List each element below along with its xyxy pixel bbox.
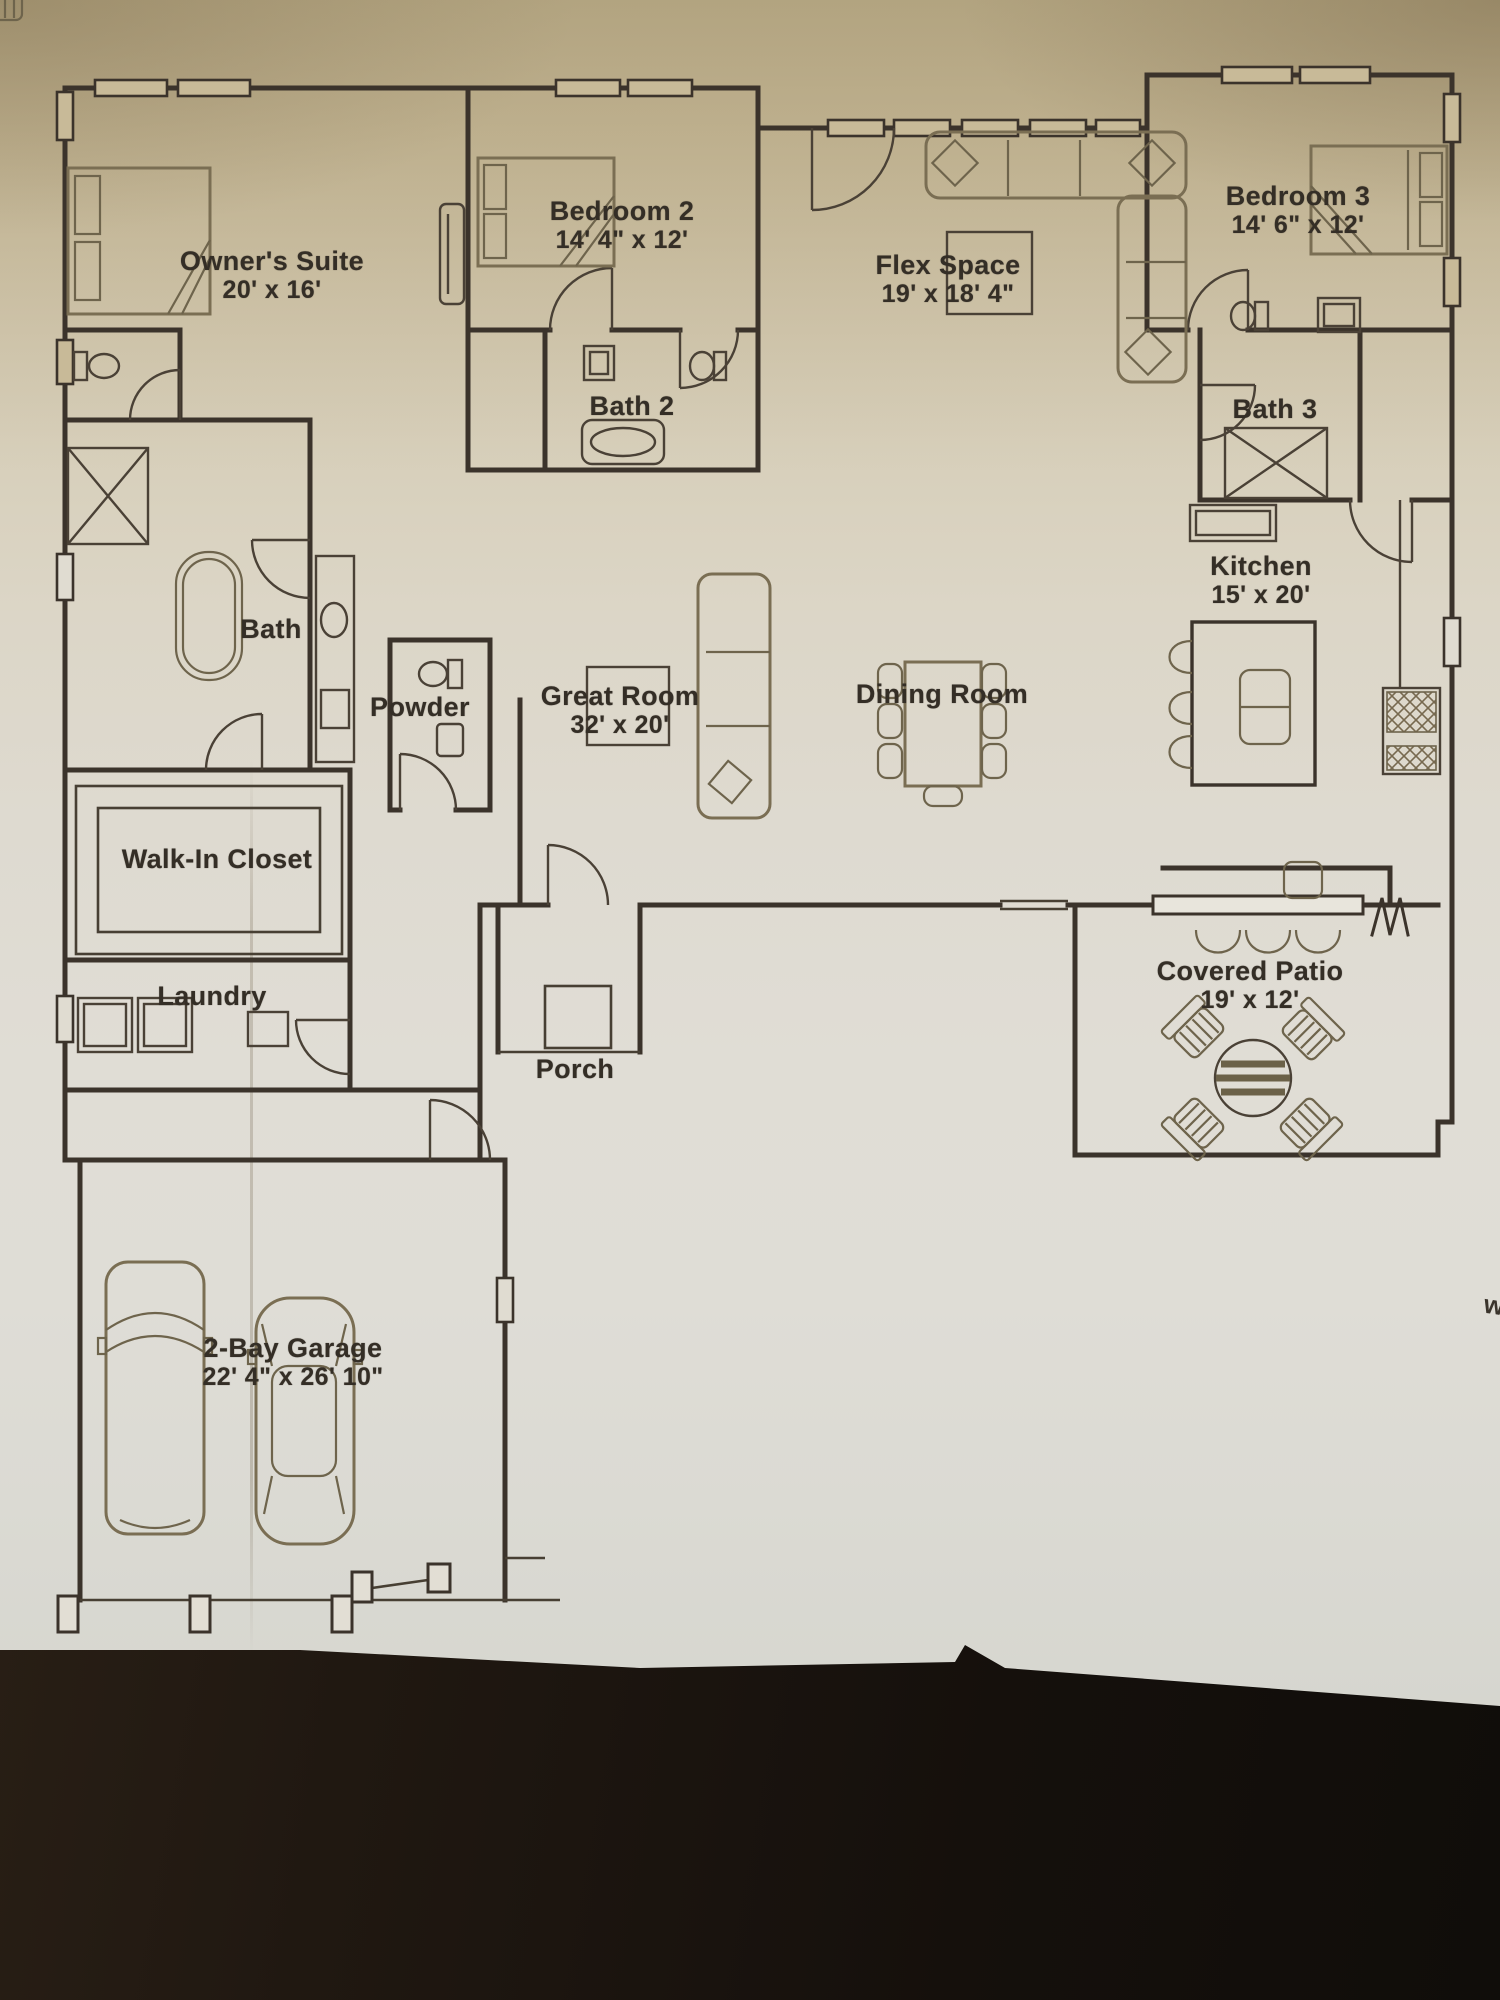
kitchen-range xyxy=(1383,688,1440,774)
room-name: Covered Patio xyxy=(1157,956,1344,986)
label-owners-suite: Owner's Suite20' x 16' xyxy=(180,246,364,304)
handwritten-edge-mark: w xyxy=(1482,1289,1500,1323)
room-name: Kitchen xyxy=(1210,551,1312,581)
owner-bath-tub xyxy=(176,552,242,680)
label-laundry: Laundry xyxy=(157,981,266,1011)
room-name: 2-Bay Garage xyxy=(202,1333,383,1363)
label-bedroom-2: Bedroom 214' 4" x 12' xyxy=(550,196,695,254)
room-name: Great Room xyxy=(541,681,700,711)
room-dims: 32' x 20' xyxy=(541,711,700,739)
label-bath-2: Bath 2 xyxy=(590,391,675,421)
room-name: Flex Space xyxy=(875,250,1020,280)
room-name: Bath 3 xyxy=(1233,394,1318,424)
room-dims: 14' 6" x 12' xyxy=(1226,211,1371,239)
owners-dresser xyxy=(440,204,464,304)
great-room-sofa xyxy=(698,574,770,818)
toilet-room-toilet xyxy=(74,352,119,380)
room-dims: 20' x 16' xyxy=(180,276,364,304)
room-name: Bedroom 3 xyxy=(1226,181,1371,211)
label-porch: Porch xyxy=(536,1054,615,1084)
label-garage: 2-Bay Garage22' 4" x 26' 10" xyxy=(202,1333,383,1391)
label-flex-space: Flex Space19' x 18' 4" xyxy=(875,250,1020,308)
label-dining-room: Dining Room xyxy=(856,679,1028,709)
owner-bath-shower xyxy=(68,448,148,544)
patio-bar-stools xyxy=(1196,930,1340,953)
porch-step xyxy=(545,986,611,1048)
bar-counter-and-sink xyxy=(1153,862,1408,935)
room-name: Dining Room xyxy=(856,679,1028,709)
label-great-room: Great Room32' x 20' xyxy=(541,681,700,739)
room-dims: 14' 4" x 12' xyxy=(550,226,695,254)
kitchen-island xyxy=(1170,622,1316,785)
room-name: Bedroom 2 xyxy=(550,196,695,226)
garage-truck xyxy=(98,1262,212,1534)
label-bath-3: Bath 3 xyxy=(1233,394,1318,424)
label-walk-in-closet: Walk-In Closet xyxy=(122,844,313,874)
garage-door-posts xyxy=(58,1564,450,1632)
room-name: Powder xyxy=(370,692,470,722)
room-name: Porch xyxy=(536,1054,615,1084)
room-name: Owner's Suite xyxy=(180,246,364,276)
label-powder: Powder xyxy=(370,692,470,722)
room-name: Bath xyxy=(240,614,302,644)
label-kitchen: Kitchen15' x 20' xyxy=(1210,551,1312,609)
label-bath: Bath xyxy=(240,614,302,644)
room-dims: 15' x 20' xyxy=(1210,581,1312,609)
patio-table xyxy=(1215,1040,1291,1116)
room-name: Laundry xyxy=(157,981,266,1011)
room-name: Walk-In Closet xyxy=(122,844,313,874)
owner-bath-vanity xyxy=(316,556,354,762)
label-covered-patio: Covered Patio19' x 12' xyxy=(1157,956,1344,1014)
room-dims: 19' x 12' xyxy=(1157,986,1344,1014)
room-name: Bath 2 xyxy=(590,391,675,421)
label-bedroom-3: Bedroom 314' 6" x 12' xyxy=(1226,181,1371,239)
photo-of-floor-plan: Owner's Suite20' x 16' Bedroom 214' 4" x… xyxy=(0,0,1500,2000)
room-dims: 22' 4" x 26' 10" xyxy=(202,1363,383,1391)
room-dims: 19' x 18' 4" xyxy=(875,280,1020,308)
